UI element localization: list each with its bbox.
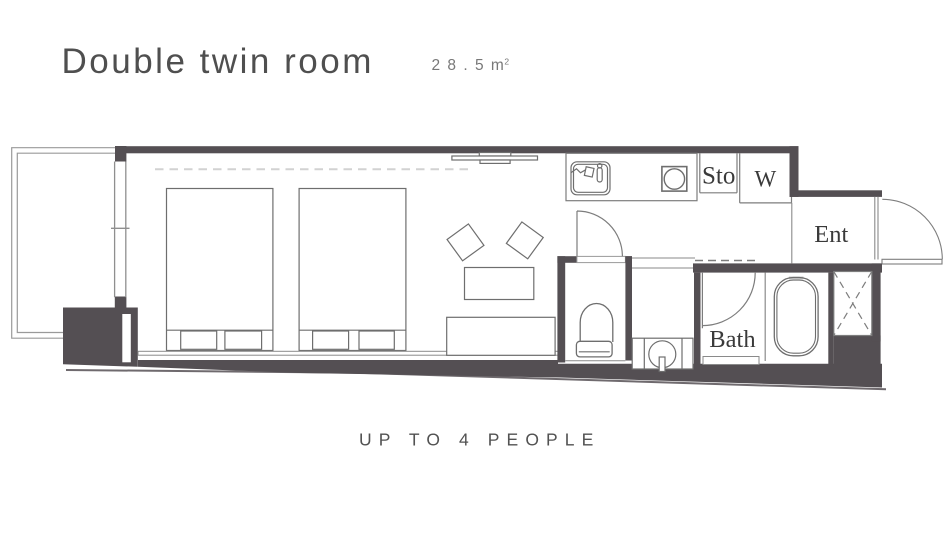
svg-text:2 8 . 5 m2: 2 8 . 5 m2	[432, 56, 510, 74]
svg-text:Bath: Bath	[709, 326, 755, 353]
svg-text:Double twin room: Double twin room	[62, 42, 374, 81]
svg-text:W: W	[755, 167, 777, 192]
svg-text:Ent: Ent	[814, 221, 848, 248]
svg-text:UP TO 4 PEOPLE: UP TO 4 PEOPLE	[359, 429, 600, 449]
svg-text:Sto: Sto	[702, 162, 735, 189]
